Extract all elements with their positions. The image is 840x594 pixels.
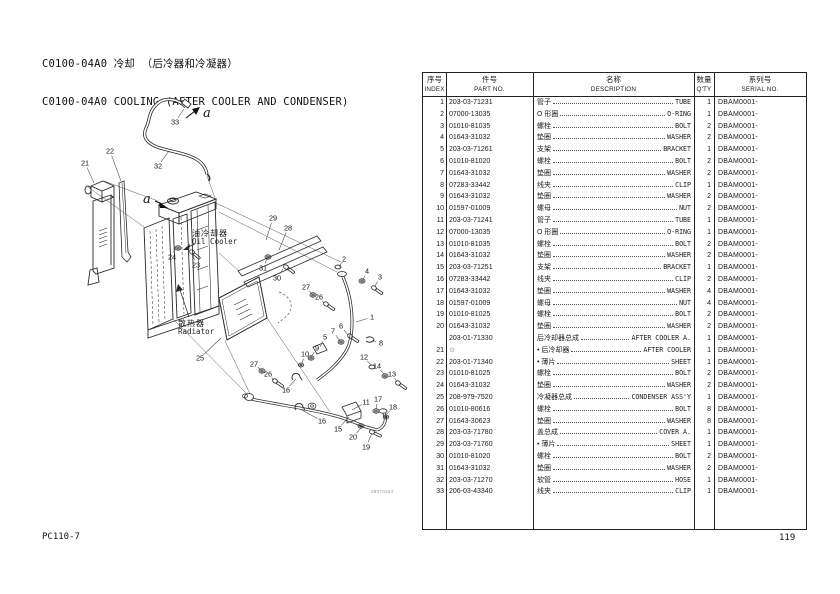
cell-part-no: 203-03-71760	[446, 439, 533, 451]
cell-serial: DBAM0001-	[714, 333, 806, 345]
cell-description: O 形圈 O-RING	[533, 227, 694, 239]
cell-qty: 2	[694, 451, 714, 463]
cell-serial: DBAM0001-	[714, 144, 806, 156]
callout-20: 20	[349, 433, 357, 442]
description-cn: 垫圈	[537, 321, 551, 333]
callout-10: 10	[301, 350, 309, 359]
callout-1: 1	[370, 313, 374, 322]
cell-description: 支架 BRACKET	[533, 262, 694, 274]
cell-qty: 1	[694, 215, 714, 227]
callout-18: 18	[389, 403, 397, 412]
cell-description: 管子 TUBE	[533, 97, 694, 109]
cell-serial: DBAM0001-	[714, 463, 806, 475]
hose-fitting-33	[182, 99, 191, 108]
cell-description: 盖总成 COVER A.	[533, 427, 694, 439]
description-en: BOLT	[675, 309, 691, 321]
after-cooler-21	[85, 181, 114, 285]
cell-description: 垫圈 WASHER	[533, 168, 694, 180]
description-en: BOLT	[675, 451, 691, 463]
cell-qty: 2	[694, 132, 714, 144]
cell-description: 线夹 CLIP	[533, 486, 694, 498]
description-en: COVER A.	[659, 427, 691, 439]
cell-part-no: 07283-33442	[446, 180, 533, 192]
cell-description: 螺栓 BOLT	[533, 451, 694, 463]
table-row: 24 01643-31032 垫圈 WASHER 2 DBAM0001-	[423, 380, 806, 392]
dot-leader	[553, 292, 665, 293]
cell-index: 19	[423, 309, 446, 321]
callout-33: 33	[171, 118, 179, 127]
cell-qty: 2	[694, 380, 714, 392]
table-row: 25 208-979-7520 冷凝器总成 CONDENSER ASS'Y 1 …	[423, 392, 806, 404]
cell-serial: DBAM0001-	[714, 215, 806, 227]
cell-index: 1	[423, 97, 446, 109]
table-row: 12 07000-13035 O 形圈 O-RING 1 DBAM0001-	[423, 227, 806, 239]
description-cn: 管子	[537, 215, 551, 227]
dot-leader	[553, 162, 673, 163]
description-en: NUT	[679, 298, 691, 310]
callout-11: 11	[362, 398, 370, 407]
callout-22: 22	[106, 147, 114, 156]
cell-index: 9	[423, 191, 446, 203]
cell-serial: DBAM0001-	[714, 475, 806, 487]
cell-serial: DBAM0001-	[714, 427, 806, 439]
cell-qty: 2	[694, 121, 714, 133]
table-row: 4 01643-31032 垫圈 WASHER 2 DBAM0001-	[423, 132, 806, 144]
cell-index: 27	[423, 416, 446, 428]
description-en: TUBE	[675, 97, 691, 109]
table-row: 18 01597-01009 螺母 NUT 4 DBAM0001-	[423, 298, 806, 310]
cell-index: 11	[423, 215, 446, 227]
cell-index: 2	[423, 109, 446, 121]
cell-description: 后冷却器总成 AFTER COOLER A.	[533, 333, 694, 345]
cell-index: 6	[423, 156, 446, 168]
cell-description: 软管 HOSE	[533, 475, 694, 487]
description-en: BOLT	[675, 156, 691, 168]
description-en: WASHER	[667, 250, 691, 262]
cell-qty: 1	[694, 475, 714, 487]
table-row: 14 01643-31032 垫圈 WASHER 2 DBAM0001-	[423, 250, 806, 262]
cell-part-no: 01010-81025	[446, 309, 533, 321]
cell-serial: DBAM0001-	[714, 191, 806, 203]
table-row: 7 01643-31032 垫圈 WASHER 2 DBAM0001-	[423, 168, 806, 180]
cell-qty: 1	[694, 144, 714, 156]
cell-qty: 2	[694, 250, 714, 262]
sheet-22	[119, 181, 131, 262]
description-cn: 垫圈	[537, 380, 551, 392]
table-row: 9 01643-31032 垫圈 WASHER 2 DBAM0001-	[423, 191, 806, 203]
table-row: 20 01643-31032 垫圈 WASHER 2 DBAM0001-	[423, 321, 806, 333]
cell-index: 13	[423, 239, 446, 251]
cell-index: 24	[423, 380, 446, 392]
table-row: 13 01010-81035 螺栓 BOLT 2 DBAM0001-	[423, 239, 806, 251]
cell-serial: DBAM0001-	[714, 227, 806, 239]
table-row: 22 203-01-71340 • 薄片 SHEET 1 DBAM0001-	[423, 357, 806, 369]
dot-leader	[553, 245, 673, 246]
dot-leader	[553, 127, 673, 128]
dot-leader	[553, 481, 673, 482]
cell-qty: 2	[694, 168, 714, 180]
header-serial-no: 系列号SERIAL NO.	[714, 73, 806, 97]
cell-part-no: 07000-13035	[446, 227, 533, 239]
description-cn: 螺栓	[537, 309, 551, 321]
description-cn: 螺栓	[537, 239, 551, 251]
cell-part-no: 01643-31032	[446, 132, 533, 144]
callout-29: 29	[269, 214, 277, 223]
description-cn: 线夹	[537, 274, 551, 286]
cell-serial: DBAM0001-	[714, 97, 806, 109]
clip-8	[366, 337, 374, 342]
cell-description: 螺栓 BOLT	[533, 156, 694, 168]
callout-30: 30	[273, 274, 281, 283]
description-cn: 螺栓	[537, 451, 551, 463]
dot-leader	[553, 374, 673, 375]
table-row: 10 01597-01009 螺母 NUT 2 DBAM0001-	[423, 203, 806, 215]
callout-16: 16	[282, 386, 290, 395]
cell-serial: DBAM0001-	[714, 262, 806, 274]
dot-leader	[553, 221, 673, 222]
cell-index: 26	[423, 404, 446, 416]
cell-qty: 2	[694, 368, 714, 380]
footer-model: PC110-7	[42, 532, 80, 542]
cell-description: 垫圈 WASHER	[533, 380, 694, 392]
cell-description: 螺母 NUT	[533, 298, 694, 310]
callout-26: 26	[264, 370, 272, 379]
callout-4: 4	[365, 267, 369, 276]
cell-index: 29	[423, 439, 446, 451]
cell-serial: DBAM0001-	[714, 357, 806, 369]
cell-serial: DBAM0001-	[714, 286, 806, 298]
cell-description: 螺栓 BOLT	[533, 404, 694, 416]
dot-leader	[574, 398, 629, 399]
cell-serial: DBAM0001-	[714, 451, 806, 463]
cell-description: 管子 TUBE	[533, 215, 694, 227]
callout-13: 13	[388, 370, 396, 379]
cell-serial: DBAM0001-	[714, 486, 806, 498]
cell-serial: DBAM0001-	[714, 121, 806, 133]
cell-part-no: 203-03-71251	[446, 262, 533, 274]
dot-leader	[560, 115, 665, 116]
description-cn: 螺母	[537, 203, 551, 215]
cell-index: 3	[423, 121, 446, 133]
table-row: 27 01643-30623 垫圈 WASHER 8 DBAM0001-	[423, 416, 806, 428]
cell-index: 31	[423, 463, 446, 475]
cell-part-no: 01010-80616	[446, 404, 533, 416]
cell-index: 16	[423, 274, 446, 286]
description-cn: 线夹	[537, 180, 551, 192]
cell-qty: 1	[694, 227, 714, 239]
cell-index: 8	[423, 180, 446, 192]
view-arrow-icon	[192, 107, 200, 115]
cell-serial: DBAM0001-	[714, 416, 806, 428]
drawing-number: 09070364	[371, 489, 394, 494]
svg-text:a: a	[203, 106, 211, 121]
cell-part-no: 01643-31032	[446, 321, 533, 333]
description-cn: 软管	[537, 475, 551, 487]
cell-part-no: 203-01-71330	[446, 333, 533, 345]
description-cn: 支架	[537, 144, 551, 156]
callout-27: 27	[250, 360, 258, 369]
cell-part-no: ☆	[446, 345, 533, 357]
cell-index: 17	[423, 286, 446, 298]
cell-part-no: 01597-01009	[446, 203, 533, 215]
cell-description: 垫圈 WASHER	[533, 132, 694, 144]
cell-qty: 2	[694, 463, 714, 475]
callout-23: 23	[192, 261, 200, 270]
description-en: WASHER	[667, 321, 691, 333]
cell-description: 垫圈 WASHER	[533, 191, 694, 203]
cell-part-no: 01010-81020	[446, 156, 533, 168]
description-cn: 螺栓	[537, 368, 551, 380]
dot-leader	[553, 256, 665, 257]
cell-part-no: 203-03-71261	[446, 144, 533, 156]
cell-serial: DBAM0001-	[714, 180, 806, 192]
cell-description: 螺栓 BOLT	[533, 239, 694, 251]
table-row: 21 ☆ • 后冷却器 AFTER COOLER 1 DBAM0001-	[423, 345, 806, 357]
cell-qty: 8	[694, 404, 714, 416]
cell-part-no: 203-03-71270	[446, 475, 533, 487]
table-row: 17 01643-31032 垫圈 WASHER 4 DBAM0001-	[423, 286, 806, 298]
cell-qty: 1	[694, 427, 714, 439]
cell-description: 线夹 CLIP	[533, 274, 694, 286]
table-row: 30 01010-81020 螺栓 BOLT 2 DBAM0001-	[423, 451, 806, 463]
table-row: 28 203-03-71780 盖总成 COVER A. 1 DBAM0001-	[423, 427, 806, 439]
parts-table-header: 序号INDEX 件号PART NO. 名称DESCRIPTION 数量Q'TY …	[423, 73, 806, 97]
dot-leader	[553, 469, 665, 470]
cell-serial: DBAM0001-	[714, 156, 806, 168]
dot-leader	[553, 492, 673, 493]
dot-leader	[581, 339, 629, 340]
description-en: O-RING	[667, 227, 691, 239]
description-cn: O 形圈	[537, 227, 558, 239]
callout-28: 28	[284, 224, 292, 233]
cell-qty: 1	[694, 357, 714, 369]
cell-qty: 2	[694, 321, 714, 333]
dot-leader	[553, 304, 677, 305]
cell-index: 22	[423, 357, 446, 369]
cell-part-no: 01010-81020	[446, 451, 533, 463]
callout-25: 25	[196, 354, 204, 363]
callout-9: 9	[315, 344, 319, 353]
cell-description: 垫圈 WASHER	[533, 463, 694, 475]
cell-part-no: 01643-31032	[446, 380, 533, 392]
cell-qty: 1	[694, 333, 714, 345]
cell-description: • 薄片 SHEET	[533, 357, 694, 369]
view-marker-top: a	[186, 106, 211, 121]
cell-index: 4	[423, 132, 446, 144]
callout-8: 8	[379, 339, 383, 348]
cell-qty: 8	[694, 416, 714, 428]
table-row: 5 203-03-71261 支架 BRACKET 1 DBAM0001-	[423, 144, 806, 156]
description-en: NUT	[679, 203, 691, 215]
cell-index: 25	[423, 392, 446, 404]
table-row: 11 203-03-71241 管子 TUBE 1 DBAM0001-	[423, 215, 806, 227]
dot-leader	[553, 315, 673, 316]
table-row: 1 203-03-71231 管子 TUBE 1 DBAM0001-	[423, 97, 806, 109]
cell-description: 支架 BRACKET	[533, 144, 694, 156]
table-row: 26 01010-80616 螺栓 BOLT 8 DBAM0001-	[423, 404, 806, 416]
cell-part-no: 203-03-71231	[446, 97, 533, 109]
cell-serial: DBAM0001-	[714, 274, 806, 286]
description-cn: 垫圈	[537, 250, 551, 262]
cell-qty: 1	[694, 109, 714, 121]
cell-part-no: 01010-81035	[446, 121, 533, 133]
table-row: 8 07283-33442 线夹 CLIP 1 DBAM0001-	[423, 180, 806, 192]
description-cn: 垫圈	[537, 191, 551, 203]
table-row: 3 01010-81035 螺栓 BOLT 2 DBAM0001-	[423, 121, 806, 133]
cell-serial: DBAM0001-	[714, 392, 806, 404]
dot-leader	[553, 186, 673, 187]
cell-index: 15	[423, 262, 446, 274]
cell-description: 垫圈 WASHER	[533, 250, 694, 262]
description-cn: 螺母	[537, 298, 551, 310]
description-cn: 支架	[537, 262, 551, 274]
cell-part-no: 07283-33442	[446, 274, 533, 286]
description-cn: 冷凝器总成	[537, 392, 572, 404]
callout-3: 3	[378, 273, 382, 282]
cell-qty: 2	[694, 239, 714, 251]
description-en: AFTER COOLER	[643, 345, 691, 357]
description-en: CLIP	[675, 274, 691, 286]
cell-qty: 4	[694, 286, 714, 298]
cell-qty: 2	[694, 203, 714, 215]
callout-19: 19	[362, 443, 370, 452]
cell-index: 14	[423, 250, 446, 262]
dot-leader	[557, 445, 669, 446]
dot-leader	[553, 197, 665, 198]
description-en: WASHER	[667, 416, 691, 428]
cell-part-no: 01010-81025	[446, 368, 533, 380]
description-en: O-RING	[667, 109, 691, 121]
callout-14: 14	[373, 362, 381, 371]
dot-leader	[557, 363, 669, 364]
description-cn: 垫圈	[537, 132, 551, 144]
catalog-page: C0100-04A0 冷却 （后冷器和冷凝器） C0100-04A0 COOLI…	[0, 0, 840, 594]
description-cn: 垫圈	[537, 463, 551, 475]
oil-cooler-arrow	[183, 244, 190, 250]
table-row: 33 206-03-43340 线夹 CLIP 1 DBAM0001-	[423, 486, 806, 498]
cell-part-no: 01643-31032	[446, 168, 533, 180]
cell-qty: 2	[694, 309, 714, 321]
cell-index: 20	[423, 321, 446, 333]
table-row: 32 203-03-71270 软管 HOSE 1 DBAM0001-	[423, 475, 806, 487]
cell-qty: 2	[694, 156, 714, 168]
cell-index: 10	[423, 203, 446, 215]
table-row: 23 01010-81025 螺栓 BOLT 2 DBAM0001-	[423, 368, 806, 380]
cell-part-no: 208-979-7520	[446, 392, 533, 404]
cell-qty: 1	[694, 262, 714, 274]
cell-qty: 2	[694, 191, 714, 203]
cell-index: 7	[423, 168, 446, 180]
table-row: 19 01010-81025 螺栓 BOLT 2 DBAM0001-	[423, 309, 806, 321]
cell-serial: DBAM0001-	[714, 404, 806, 416]
dot-leader	[553, 422, 665, 423]
description-en: BOLT	[675, 239, 691, 251]
cover-bars	[238, 236, 327, 287]
callout-15: 15	[334, 425, 342, 434]
dot-leader	[553, 268, 661, 269]
cell-part-no: 01643-31032	[446, 250, 533, 262]
description-en: BRACKET	[663, 262, 691, 274]
cell-serial: DBAM0001-	[714, 298, 806, 310]
cell-serial: DBAM0001-	[714, 309, 806, 321]
cell-part-no: 203-03-71241	[446, 215, 533, 227]
cell-index: 5	[423, 144, 446, 156]
dot-leader	[553, 150, 661, 151]
callout-layer: 3332212224232928313027262431675910812141…	[81, 109, 397, 452]
callout-32: 32	[154, 162, 162, 171]
cell-part-no: 203-01-71340	[446, 357, 533, 369]
dot-leader	[560, 433, 657, 434]
dot-leader	[571, 351, 641, 352]
cell-index: 30	[423, 451, 446, 463]
cell-part-no: 01643-31032	[446, 463, 533, 475]
cell-qty: 1	[694, 439, 714, 451]
radiator-label-en: Radiator	[178, 327, 215, 336]
cell-serial: DBAM0001-	[714, 321, 806, 333]
cell-index: 21	[423, 345, 446, 357]
cell-part-no: 01643-31032	[446, 286, 533, 298]
description-en: BOLT	[675, 404, 691, 416]
cell-serial: DBAM0001-	[714, 368, 806, 380]
dot-leader	[553, 280, 673, 281]
parts-table: 序号INDEX 件号PART NO. 名称DESCRIPTION 数量Q'TY …	[422, 72, 807, 530]
cell-index: 33	[423, 486, 446, 498]
cell-serial: DBAM0001-	[714, 345, 806, 357]
description-en: AFTER COOLER A.	[631, 333, 691, 345]
cell-serial: DBAM0001-	[714, 250, 806, 262]
cell-part-no: 07000-13035	[446, 109, 533, 121]
cell-part-no: 01010-81035	[446, 239, 533, 251]
callout-16: 16	[318, 417, 326, 426]
callout-24: 24	[168, 253, 176, 262]
description-en: CLIP	[675, 486, 691, 498]
cell-index: 23	[423, 368, 446, 380]
dot-leader	[553, 327, 665, 328]
cell-description: 垫圈 WASHER	[533, 416, 694, 428]
callout-6: 6	[339, 322, 343, 331]
dot-leader	[553, 209, 677, 210]
callout-27: 27	[302, 283, 310, 292]
description-en: BOLT	[675, 121, 691, 133]
cell-serial: DBAM0001-	[714, 380, 806, 392]
cell-description: 线夹 CLIP	[533, 180, 694, 192]
cell-description: 垫圈 WASHER	[533, 321, 694, 333]
description-cn: • 薄片	[537, 439, 555, 451]
description-en: CONDENSER ASS'Y	[631, 392, 691, 404]
cell-description: 螺栓 BOLT	[533, 309, 694, 321]
cell-index: 32	[423, 475, 446, 487]
phantom-tube	[278, 292, 291, 323]
cell-serial: DBAM0001-	[714, 109, 806, 121]
callout-12: 12	[360, 353, 368, 362]
description-en: WASHER	[667, 286, 691, 298]
cell-qty: 4	[694, 298, 714, 310]
callout-21: 21	[81, 159, 89, 168]
cell-description: 垫圈 WASHER	[533, 286, 694, 298]
description-en: TUBE	[675, 215, 691, 227]
description-en: WASHER	[667, 132, 691, 144]
cell-serial: DBAM0001-	[714, 439, 806, 451]
cell-part-no: 01643-31032	[446, 191, 533, 203]
cell-description: 螺栓 BOLT	[533, 121, 694, 133]
description-cn: 垫圈	[537, 286, 551, 298]
table-row: 29 203-03-71760 • 薄片 SHEET 1 DBAM0001-	[423, 439, 806, 451]
cell-serial: DBAM0001-	[714, 168, 806, 180]
cell-qty: 2	[694, 274, 714, 286]
callout-17: 17	[374, 395, 382, 404]
callout-5: 5	[323, 333, 327, 342]
description-en: WASHER	[667, 168, 691, 180]
